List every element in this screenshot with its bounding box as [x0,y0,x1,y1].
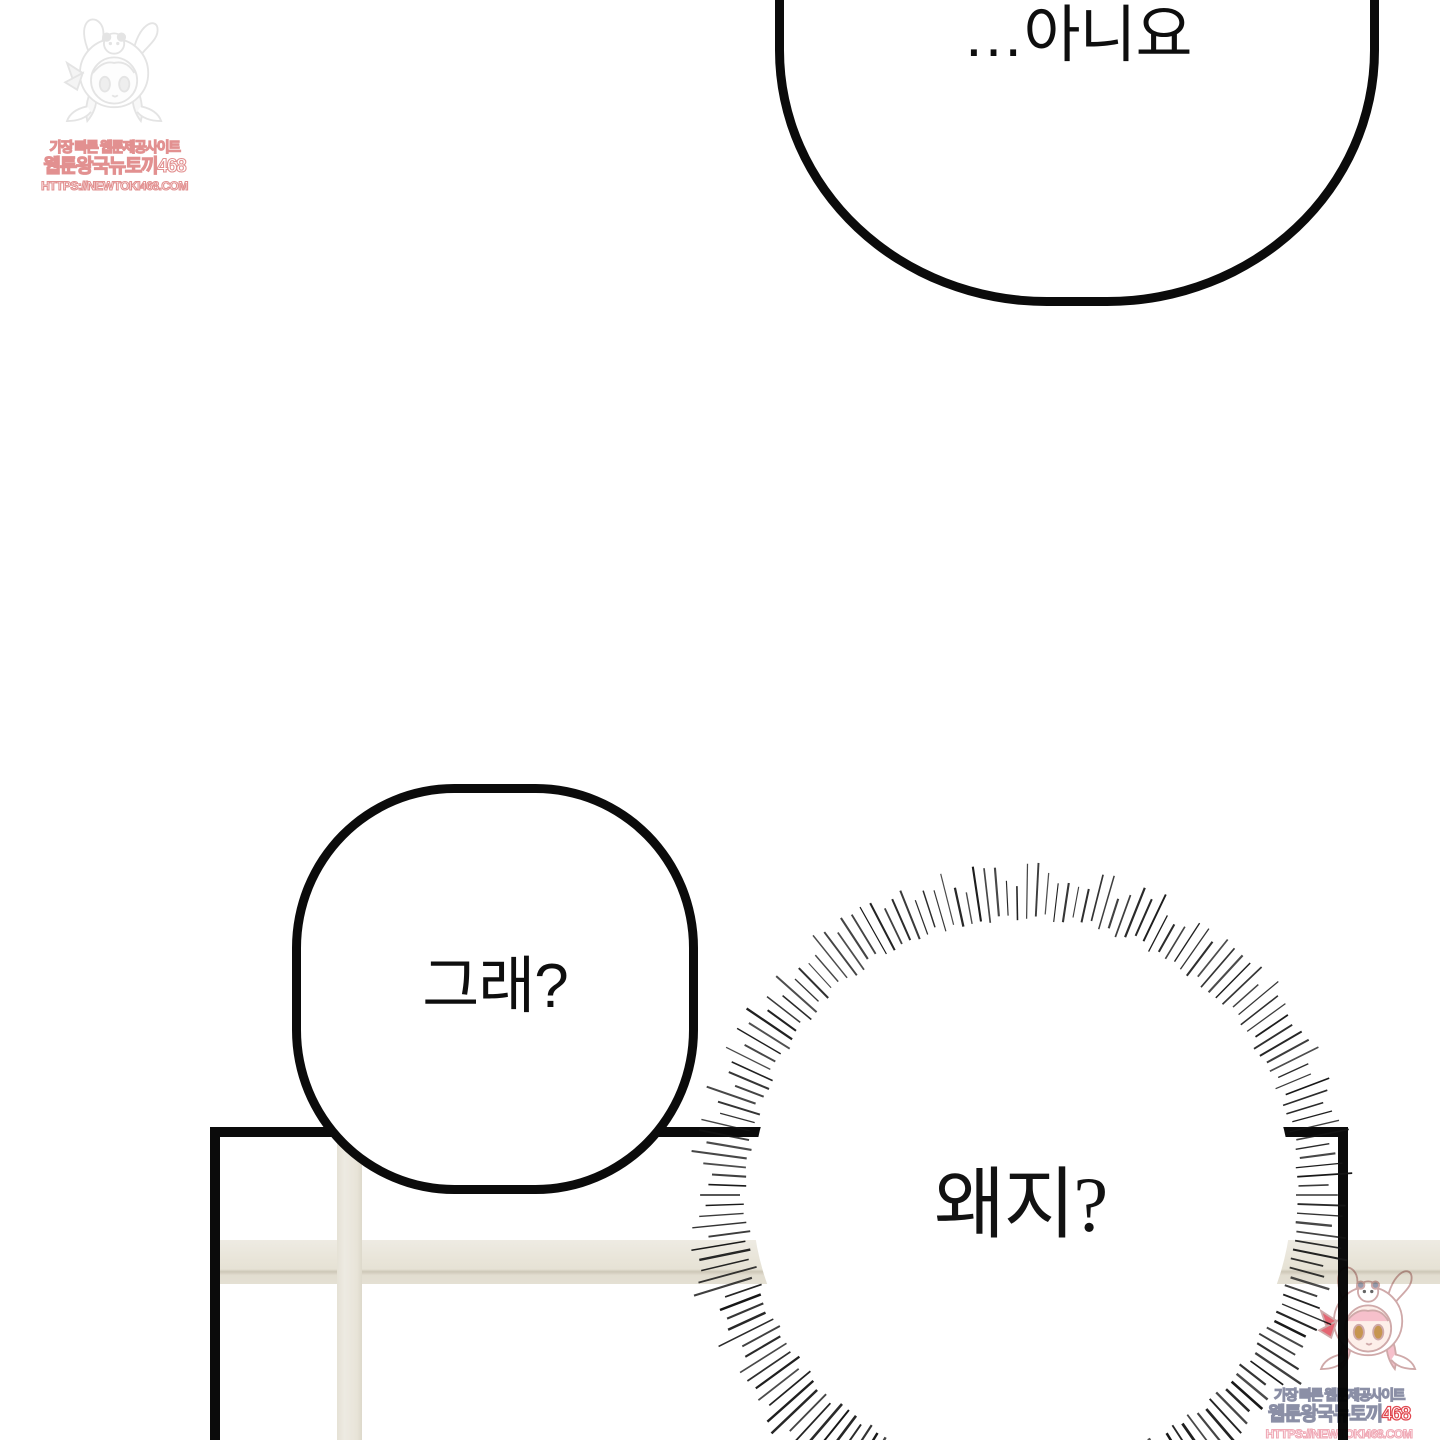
window-frame-vertical-bar [337,1137,362,1440]
mascot-rabbit-girl-icon [1294,1262,1440,1382]
comic-page: 왜지? …아니요 그래? [0,0,1440,1440]
watermark-site-number: 468 [1382,1404,1410,1425]
mascot-rabbit-girl-icon [40,14,190,134]
watermark-site-name: 웹툰왕국뉴토끼468 [1204,1404,1440,1426]
watermark-url: HTTPS://NEWTOKI468.COM [22,178,207,194]
panel-border-left [210,1127,220,1440]
burst-bubble-text: 왜지? [820,1162,1220,1248]
speech-bubble-reply-text: …아니요 [775,2,1379,70]
watermark-tagline: 가장 빠른 웹툰제공사이트 [22,139,207,156]
watermark-url: HTTPS://NEWTOKI468.COM [1204,1426,1440,1440]
watermark-tagline: 가장 빠른 웹툰제공사이트 [1204,1387,1440,1404]
watermark-top-left: 가장 빠른 웹툰제공사이트 웹툰왕국뉴토끼468 HTTPS://NEWTOKI… [22,14,207,194]
speech-bubble-question-text: 그래? [292,953,698,1021]
watermark-site-name: 웹툰왕국뉴토끼468 [22,156,207,178]
watermark-bottom-right: 가장 빠른 웹툰제공사이트 웹툰왕국뉴토끼468 HTTPS://NEWTOKI… [1204,1262,1440,1440]
watermark-site-number: 468 [157,156,185,177]
